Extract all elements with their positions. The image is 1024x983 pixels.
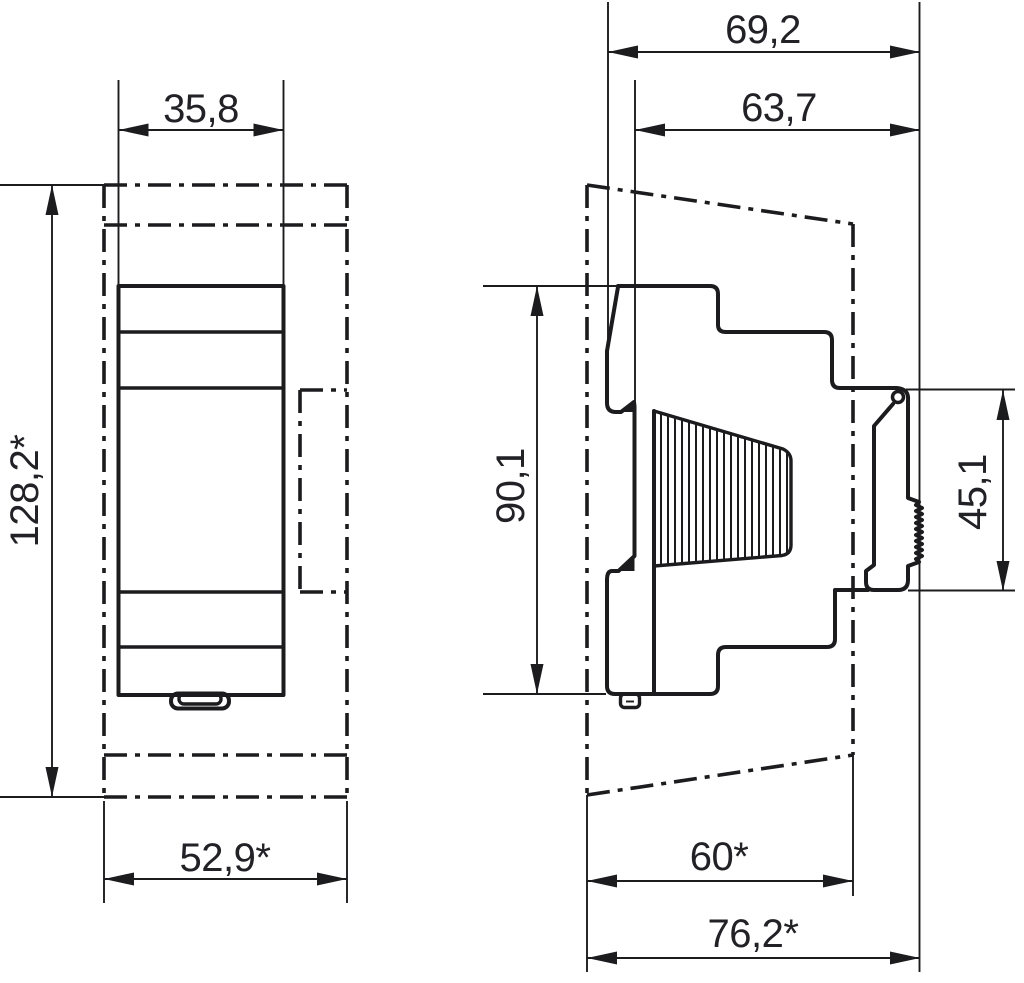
front-release-tab-slot — [179, 694, 221, 705]
arrowhead — [890, 124, 920, 137]
arrowhead — [587, 875, 617, 888]
arrowhead — [823, 875, 853, 888]
arrowhead — [119, 124, 149, 137]
dim-label-front-height: 128,2* — [3, 435, 47, 548]
side-back-outline — [618, 286, 922, 590]
phantom-line — [587, 755, 853, 795]
dimension-labels: 35,8 128,2* 52,9* 69,2 63,7 90,1 45,1 60… — [3, 8, 995, 956]
arrowhead — [608, 46, 638, 59]
arrowhead — [317, 873, 347, 886]
drawing-canvas: 35,8 128,2* 52,9* 69,2 63,7 90,1 45,1 60… — [0, 0, 1024, 983]
front-view-body — [119, 286, 284, 709]
side-view-profile — [607, 286, 922, 708]
dim-label-front-width-bottom: 52,9* — [180, 836, 271, 880]
dim-label-side-depth-total: 69,2 — [725, 8, 801, 52]
dim-label-front-width-top: 35,8 — [163, 87, 239, 131]
arrowhead — [104, 873, 134, 886]
dim-label-side-depth-overall: 76,2* — [708, 912, 799, 956]
phantom-line — [587, 185, 853, 224]
arrowhead — [890, 952, 920, 965]
arrowhead — [587, 952, 617, 965]
arrowhead — [46, 185, 59, 215]
clip-pivot-circle — [893, 392, 904, 403]
dim-label-side-depth-lower: 60* — [690, 835, 749, 879]
arrowhead — [46, 767, 59, 797]
arrowhead — [890, 46, 920, 59]
arrowhead — [254, 124, 284, 137]
dim-label-side-rail-height: 45,1 — [951, 454, 995, 530]
dim-label-side-depth-upper: 63,7 — [741, 86, 817, 130]
dim-label-side-height: 90,1 — [489, 448, 533, 524]
arrowhead — [531, 286, 544, 316]
arrowhead — [997, 561, 1010, 591]
arrowhead — [635, 124, 665, 137]
technical-drawing: 35,8 128,2* 52,9* 69,2 63,7 90,1 45,1 60… — [0, 0, 1024, 983]
arrowhead — [531, 664, 544, 694]
arrowhead — [997, 390, 1010, 420]
side-view-phantom-outline — [587, 185, 853, 795]
front-body-outline — [119, 286, 284, 695]
